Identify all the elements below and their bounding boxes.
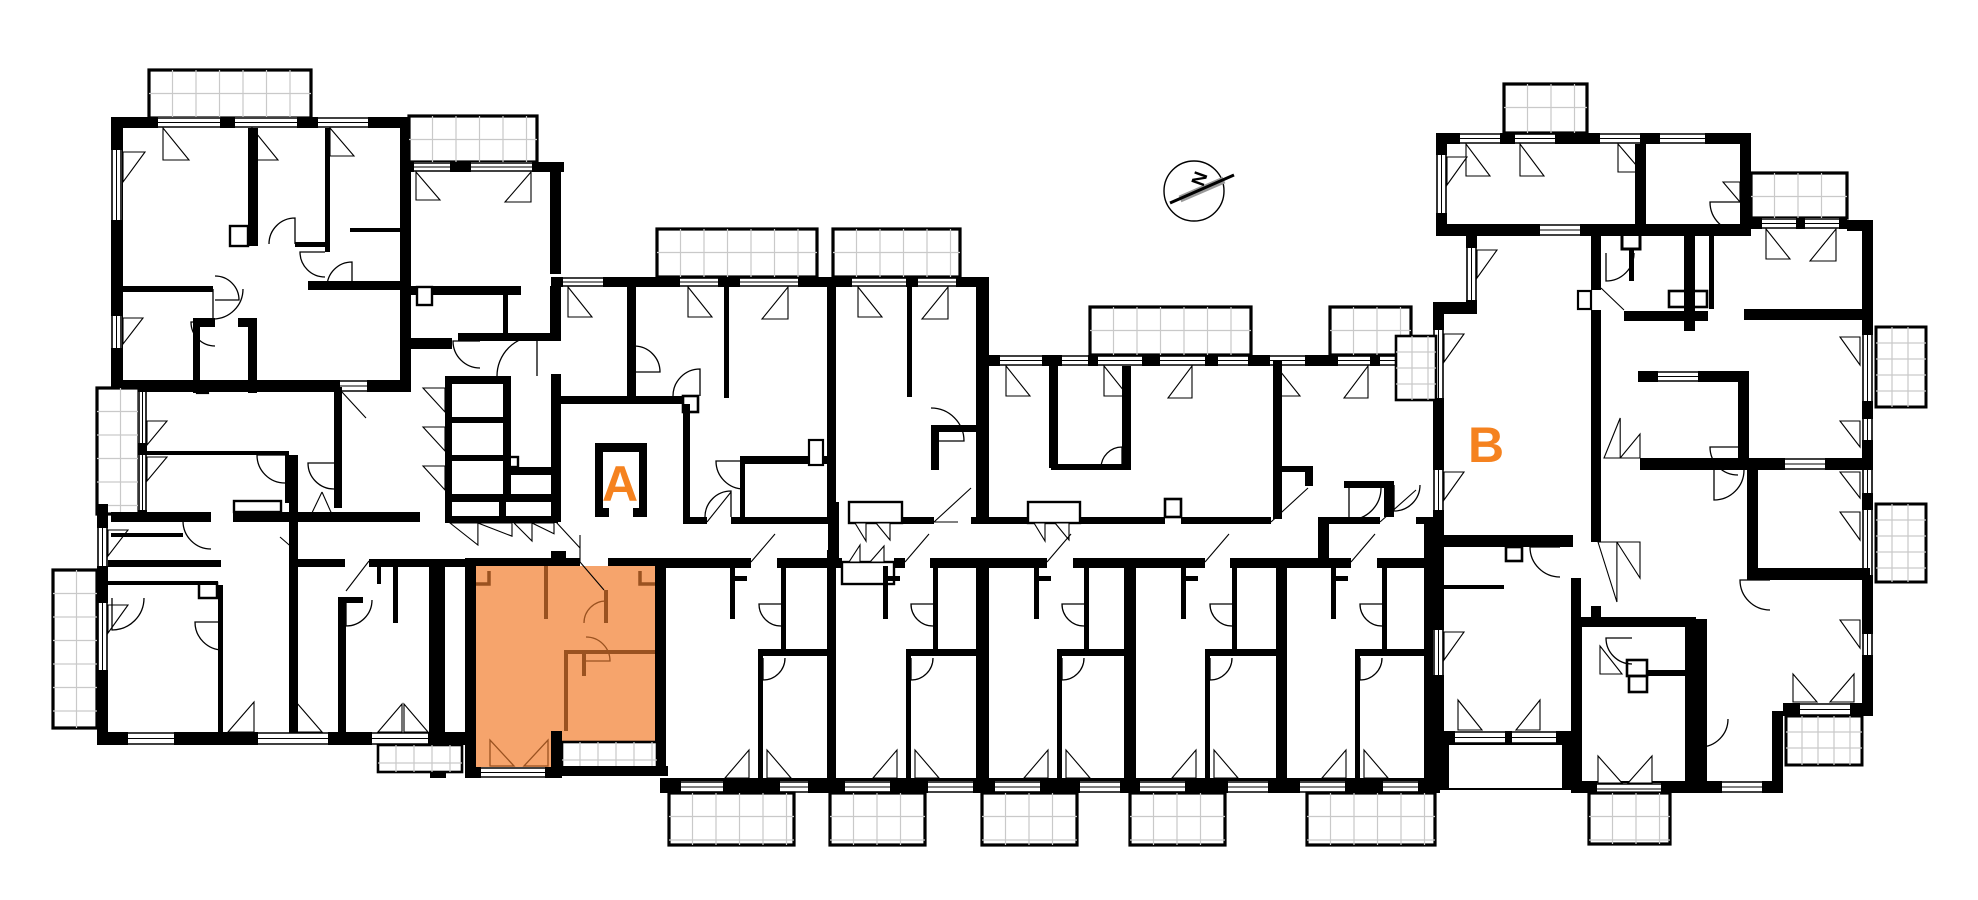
svg-text:B: B bbox=[1468, 417, 1504, 473]
svg-text:A: A bbox=[602, 456, 638, 512]
